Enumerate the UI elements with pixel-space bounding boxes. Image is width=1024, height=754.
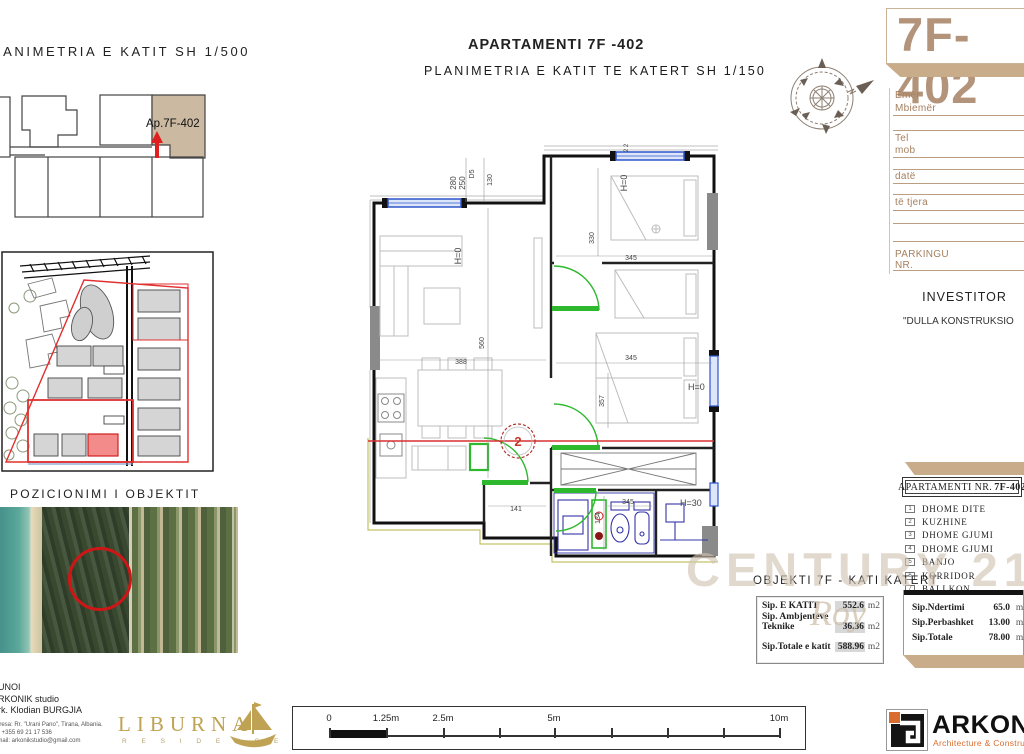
- svg-text:H=0: H=0: [453, 248, 463, 265]
- svg-text:388: 388: [455, 359, 467, 366]
- key-plan-lower-row: [15, 157, 203, 217]
- table-row: Sip.Totale 78.00 m2: [904, 631, 1023, 646]
- plaque-bevel: [886, 64, 1024, 77]
- parcel-line: [368, 438, 718, 562]
- form-field-nr: NR.: [893, 260, 1024, 271]
- scale-tick: [329, 728, 331, 738]
- row-value: 13.00: [978, 616, 1010, 631]
- row-value: 588.96: [835, 642, 865, 653]
- scale-tick: [554, 728, 556, 738]
- scale-tick: [723, 728, 725, 738]
- form-blank-line: [893, 124, 1024, 131]
- site-location-circle: [68, 547, 132, 611]
- key-plan-corridor: [10, 147, 152, 155]
- scale-tick: [667, 728, 669, 738]
- svg-text:2 2: 2 2: [624, 143, 630, 152]
- svg-text:H=30: H=30: [680, 498, 702, 508]
- legend-room-name: DHOME GJUMI: [922, 544, 994, 554]
- row-label: Teknike: [762, 622, 835, 633]
- arkonik-logo-icon: [886, 709, 928, 751]
- form-field-emer: Emër: [893, 90, 1024, 103]
- floor-plan: 2 280 250 D5 130 560 H=0 2 2 H=0 330 345…: [366, 138, 726, 568]
- svg-text:357: 357: [599, 395, 606, 407]
- exterior-walls: [374, 156, 714, 556]
- row-label: Sip. Ambjenteve: [762, 612, 835, 623]
- table-row: Sip.Totale e katit 588.96 m2: [762, 642, 880, 653]
- legend-room-number: 2: [905, 518, 915, 526]
- scale-label: 5m: [547, 713, 560, 724]
- legend-header: APARTAMENTI NR.7F-402: [902, 477, 1022, 497]
- room-number: 2: [514, 434, 521, 449]
- arkonik-logo-text: ARKONIK: [932, 711, 1024, 740]
- legend-room-number: 3: [905, 531, 915, 539]
- author-address: Adresa: Rr. "Urani Pano", Tirana, Albani…: [0, 721, 103, 729]
- svg-text:141: 141: [510, 506, 522, 513]
- apartment-code-plaque: 7F-402: [886, 8, 1024, 64]
- investor-label: INVESTITOR: [905, 290, 1024, 304]
- legend-header-text: APARTAMENTI NR.: [898, 482, 992, 493]
- aerial-fields: [131, 507, 238, 653]
- wall-poche: [370, 193, 718, 556]
- scale-solid-segment: [329, 730, 386, 738]
- row-value: 65.0: [978, 601, 1010, 616]
- table-bevel: [903, 655, 1024, 668]
- author-studio: ARKONIK studio: [0, 694, 82, 706]
- scale-bar: 0 1.25m 2.5m 5m 10m: [292, 706, 806, 750]
- scale-tick: [779, 728, 781, 738]
- interior-walls: [484, 156, 714, 556]
- sheet-title: APARTAMENTI 7F -402: [468, 37, 644, 53]
- scale-tick: [611, 728, 613, 738]
- row-value: 552.6: [835, 601, 865, 612]
- author-architect: Ark. Klodian BURGJIA: [0, 705, 82, 717]
- form-field-te-tjera: të tjera: [893, 197, 1024, 211]
- furniture: [376, 176, 698, 478]
- form-blank-line: [893, 163, 1024, 170]
- legend-row: 5BANJO: [905, 556, 1024, 569]
- legend-row: 3DHOME GJUMI: [905, 529, 1024, 542]
- row-label: Sip.Totale: [912, 631, 978, 646]
- row-label: Sip.Perbashket: [912, 616, 978, 631]
- key-plan: Ap.7F-402: [0, 90, 215, 225]
- scale-label: 0: [326, 713, 331, 724]
- key-plan-unit: [100, 95, 152, 145]
- doors: [470, 266, 600, 531]
- form-divider: [889, 88, 890, 274]
- table-row: Sip. Ambjenteve: [762, 612, 880, 623]
- svg-text:330: 330: [589, 232, 596, 244]
- form-field-mob: mob: [893, 145, 1024, 158]
- aerial-road-2: [232, 507, 234, 653]
- row-value: 36.36: [835, 622, 865, 633]
- form-blank-line: [893, 187, 1024, 195]
- table-row: Teknike 36.36 m2: [762, 622, 880, 633]
- key-plan-unit-label: Ap.7F-402: [146, 118, 200, 130]
- form-field-mbiemer: Mbiemër: [893, 103, 1024, 116]
- row-unit: m2: [865, 642, 880, 653]
- scale-tick: [443, 728, 445, 738]
- svg-text:D5: D5: [469, 169, 476, 178]
- legend-room-name: DHOME GJUMI: [922, 530, 994, 540]
- legend-room-number: 5: [905, 558, 915, 566]
- key-plan-title: PLANIMETRIA E KATIT SH 1/500: [0, 44, 250, 59]
- legend-bevel: [905, 462, 1024, 475]
- legend-room-name: DHOME DITE: [922, 504, 986, 514]
- row-unit: m2: [865, 601, 880, 612]
- aerial-beach: [31, 507, 42, 653]
- investor-name: "DULLA KONSTRUKSIO: [903, 316, 1024, 327]
- aerial-photo: [0, 507, 238, 653]
- legend-row: 4DHOME GJUMI: [905, 542, 1024, 555]
- legend-row: 1DHOME DITE: [905, 502, 1024, 515]
- svg-text:250: 250: [458, 176, 467, 190]
- object-floor-label: OBJEKTI 7F - KATI KATERT: [753, 575, 938, 587]
- apartment-area-table: Sip.Ndertimi 65.0 m2 Sip.Perbashket 13.0…: [903, 590, 1024, 655]
- author-role: PUNOI: [0, 682, 82, 694]
- svg-text:345: 345: [625, 255, 637, 262]
- svg-text:345: 345: [622, 499, 634, 506]
- svg-text:H=0: H=0: [688, 382, 705, 392]
- scale-tick: [386, 728, 388, 738]
- table-row: Sip.Ndertimi 65.0 m2: [904, 601, 1023, 616]
- row-value: 78.00: [978, 631, 1010, 646]
- site-plan: [0, 248, 215, 476]
- row-unit: m2: [865, 622, 880, 633]
- legend-room-number: 1: [905, 505, 915, 513]
- row-unit: m2: [1010, 601, 1024, 616]
- key-plan-unit: [0, 97, 10, 157]
- form-blank-line: [893, 233, 1024, 242]
- key-plan-dividers: [48, 157, 152, 217]
- compass-rose-icon: [778, 50, 878, 144]
- legend-room-name: KUZHINE: [922, 517, 968, 527]
- aerial-sea: [0, 507, 31, 653]
- wardrobe: [561, 453, 696, 485]
- site-highlighted-building: [88, 434, 118, 456]
- author-contact: Adresa: Rr. "Urani Pano", Tirana, Albani…: [0, 721, 103, 745]
- svg-text:130: 130: [487, 174, 494, 186]
- svg-text:560: 560: [479, 337, 486, 349]
- scale-tick: [499, 728, 501, 738]
- form-field-tel: Tel: [893, 133, 1024, 145]
- legend-room-name: BANJO: [922, 557, 955, 567]
- svg-text:280: 280: [449, 176, 458, 190]
- svg-text:134: 134: [595, 512, 602, 524]
- author-email: e-mail: arkonikstudio@gmail.com: [0, 737, 103, 745]
- arkonik-tagline: Architecture & Construction: [933, 738, 1024, 748]
- drawing-sheet: PLANIMETRIA E KATIT SH 1/500 Ap.7F-402 A…: [0, 0, 1024, 754]
- row-label: Sip.Ndertimi: [912, 601, 978, 616]
- row-unit: m2: [1010, 631, 1024, 646]
- form-field-date: datë: [893, 171, 1024, 184]
- scale-label: 10m: [770, 713, 788, 724]
- svg-text:345: 345: [625, 355, 637, 362]
- form-blank-line: [893, 215, 1024, 224]
- table-row: Sip.Perbashket 13.00 m2: [904, 616, 1023, 631]
- sheet-subtitle: PLANIMETRIA E KATIT TE KATERT SH 1/150: [424, 64, 766, 78]
- legend-row: 2KUZHINE: [905, 515, 1024, 528]
- position-title: POZICIONIMI I OBJEKTIT: [10, 487, 200, 501]
- scale-label: 1.25m: [373, 713, 399, 724]
- floor-area-table: Sip. E KATIT 552.6 m2 Sip. Ambjenteve Te…: [756, 596, 884, 664]
- key-plan-unit: [22, 96, 77, 147]
- row-label: Sip.Totale e katit: [762, 642, 835, 653]
- legend-room-number: 4: [905, 545, 915, 553]
- svg-text:H=0: H=0: [619, 175, 629, 192]
- legend-header-code: 7F-402: [994, 482, 1024, 493]
- row-label: Sip. E KATIT: [762, 601, 835, 612]
- author-phone: tel. +355 69 21 17 536: [0, 729, 103, 737]
- liburna-ship-icon: [226, 698, 280, 752]
- scale-label: 2.5m: [432, 713, 453, 724]
- table-row: Sip. E KATIT 552.6 m2: [762, 601, 880, 612]
- form-field-parkingu: PARKINGU: [893, 249, 1024, 260]
- row-unit: m2: [1010, 616, 1024, 631]
- author-block: PUNOI ARKONIK studio Ark. Klodian BURGJI…: [0, 682, 82, 717]
- kitchen-fixtures: [378, 394, 404, 456]
